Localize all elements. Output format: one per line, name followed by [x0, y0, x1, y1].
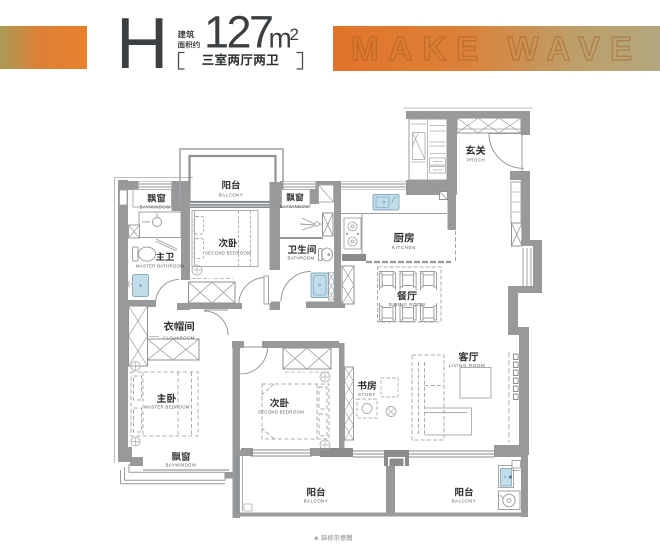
svg-text:MAKE WAVE: MAKE WAVE: [351, 30, 642, 67]
svg-text:BALCONY: BALCONY: [452, 499, 476, 504]
svg-text:BAYWINDOW: BAYWINDOW: [140, 205, 171, 210]
svg-text:m: m: [269, 23, 292, 54]
svg-text:SECOND BEDROOM: SECOND BEDROOM: [258, 410, 304, 415]
svg-text:BALCONY: BALCONY: [219, 193, 243, 198]
svg-text:BAYWINDOW: BAYWINDOW: [166, 463, 197, 468]
svg-text:MASTER BEDROOM: MASTER BEDROOM: [144, 405, 190, 410]
svg-text:STUDY: STUDY: [358, 392, 376, 397]
svg-text:BAYWINDOW: BAYWINDOW: [279, 204, 309, 209]
svg-text:BATHROOM: BATHROOM: [288, 255, 315, 260]
svg-text:MASTER BATHROOM: MASTER BATHROOM: [136, 264, 184, 269]
svg-text:DINING ROOM: DINING ROOM: [389, 302, 426, 307]
svg-text:127: 127: [204, 7, 272, 58]
svg-text:PROCH: PROCH: [467, 158, 485, 163]
svg-text:KITCHEN: KITCHEN: [392, 245, 416, 250]
svg-text:BALCONY: BALCONY: [304, 499, 328, 504]
svg-text:H: H: [116, 3, 168, 84]
svg-text:SECOND BEDROOM: SECOND BEDROOM: [205, 251, 251, 256]
svg-text:CLOAKROOM: CLOAKROOM: [163, 336, 195, 341]
svg-text:2: 2: [290, 25, 299, 44]
